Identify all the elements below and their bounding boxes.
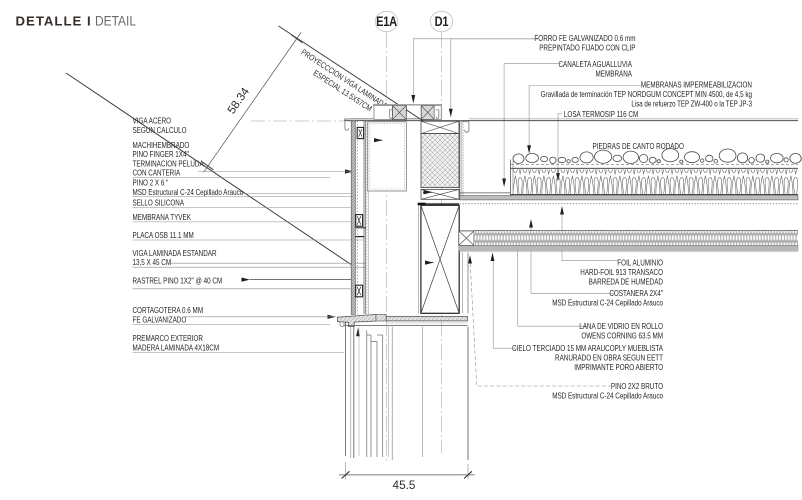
svg-text:MSD Estructural C-24 Cepillado: MSD Estructural C-24 Cepillado Arauco <box>552 299 663 308</box>
svg-text:HARD-FOIL 913 TRANSACO: HARD-FOIL 913 TRANSACO <box>580 268 663 277</box>
svg-text:OWENS CORNING 63.5 MM: OWENS CORNING 63.5 MM <box>581 332 663 341</box>
svg-text:MADERA LAMINADA 4X18CM: MADERA LAMINADA 4X18CM <box>133 344 220 353</box>
svg-text:MSD Estructural C-24 Cepillado: MSD Estructural C-24 Cepillado Arauco <box>133 188 244 197</box>
svg-text:45.5: 45.5 <box>393 478 416 492</box>
svg-text:PREMARCO EXTERIOR: PREMARCO EXTERIOR <box>133 335 203 344</box>
svg-text:TERMINACION PELUDA: TERMINACION PELUDA <box>133 160 204 169</box>
svg-text:RANURADO EN OBRA SEGUN EETT: RANURADO EN OBRA SEGUN EETT <box>555 354 664 363</box>
svg-text:LANA DE VIDRIO EN ROLLO: LANA DE VIDRIO EN ROLLO <box>579 322 663 331</box>
svg-text:SEGUN CALCULO: SEGUN CALCULO <box>133 126 187 135</box>
svg-text:CIELO TERCIADO 15 MM ARAUCOPL: CIELO TERCIADO 15 MM ARAUCOPLY MUEBLISTA <box>512 344 663 353</box>
svg-text:Gravillada de terminación TEP: Gravillada de terminación TEP NORDGUM CO… <box>541 91 752 100</box>
svg-text:13,5 X 45 CM: 13,5 X 45 CM <box>133 259 172 268</box>
svg-text:E1A: E1A <box>376 13 397 30</box>
svg-text:PINO 2X2 BRUTO: PINO 2X2 BRUTO <box>611 382 664 391</box>
svg-text:CON CANTERIA: CON CANTERIA <box>133 169 181 178</box>
svg-text:VIGA LAMINADA ESTANDAR: VIGA LAMINADA ESTANDAR <box>133 249 217 258</box>
svg-text:SELLO SILICONA: SELLO SILICONA <box>133 199 185 208</box>
svg-text:MSD Estructural C-24 Cepillado: MSD Estructural C-24 Cepillado Arauco <box>552 392 663 401</box>
svg-text:MEMBRANA TYVEK: MEMBRANA TYVEK <box>133 213 192 222</box>
svg-text:FE GALVANIZADO: FE GALVANIZADO <box>133 316 187 325</box>
svg-text:RASTREL PINO 1X2" @ 40 CM: RASTREL PINO 1X2" @ 40 CM <box>133 277 223 286</box>
svg-text:MACHIHEMBRADO: MACHIHEMBRADO <box>133 141 190 150</box>
svg-text:D1: D1 <box>435 13 449 30</box>
svg-text:COSTANERA 2X4": COSTANERA 2X4" <box>609 289 663 298</box>
svg-text:IMPRIMANTE PORO ABIERTO: IMPRIMANTE PORO ABIERTO <box>574 363 663 372</box>
svg-text:PLACA OSB 11.1 MM: PLACA OSB 11.1 MM <box>133 231 194 240</box>
svg-text:VIGA ACERO: VIGA ACERO <box>133 117 172 126</box>
svg-text:BARREDA DE HUMEDAD: BARREDA DE HUMEDAD <box>589 278 663 287</box>
svg-text:DETALLE I: DETALLE I <box>16 14 92 29</box>
svg-text:MEMBRANA: MEMBRANA <box>596 70 633 79</box>
svg-text:MEMBRANAS IMPERMEABILIZACION: MEMBRANAS IMPERMEABILIZACION <box>641 81 752 90</box>
svg-text:FOIL ALUMINIO: FOIL ALUMINIO <box>617 259 663 268</box>
svg-text:PINO 2 X 6 ": PINO 2 X 6 " <box>133 179 169 188</box>
svg-text:FORRO FE GALVANIZADO 0.6 mm: FORRO FE GALVANIZADO 0.6 mm <box>534 35 635 44</box>
svg-text:LOSA TERMOSIP 116 CM: LOSA TERMOSIP 116 CM <box>564 110 638 119</box>
svg-text:Lisa de refuerzo TEP ZW-400 o: Lisa de refuerzo TEP ZW-400 o la TEP JP-… <box>631 100 752 109</box>
svg-text:CORTAGOTERA 0.6 MM: CORTAGOTERA 0.6 MM <box>133 306 204 315</box>
svg-text:CANALETA AGUALLUVIA: CANALETA AGUALLUVIA <box>558 60 632 69</box>
svg-text:PREPINTADO FIJADO CON CLIP: PREPINTADO FIJADO CON CLIP <box>539 44 635 53</box>
svg-text:PINO FINGER 1X4": PINO FINGER 1X4" <box>133 150 190 159</box>
svg-text:DETAIL: DETAIL <box>95 13 136 29</box>
